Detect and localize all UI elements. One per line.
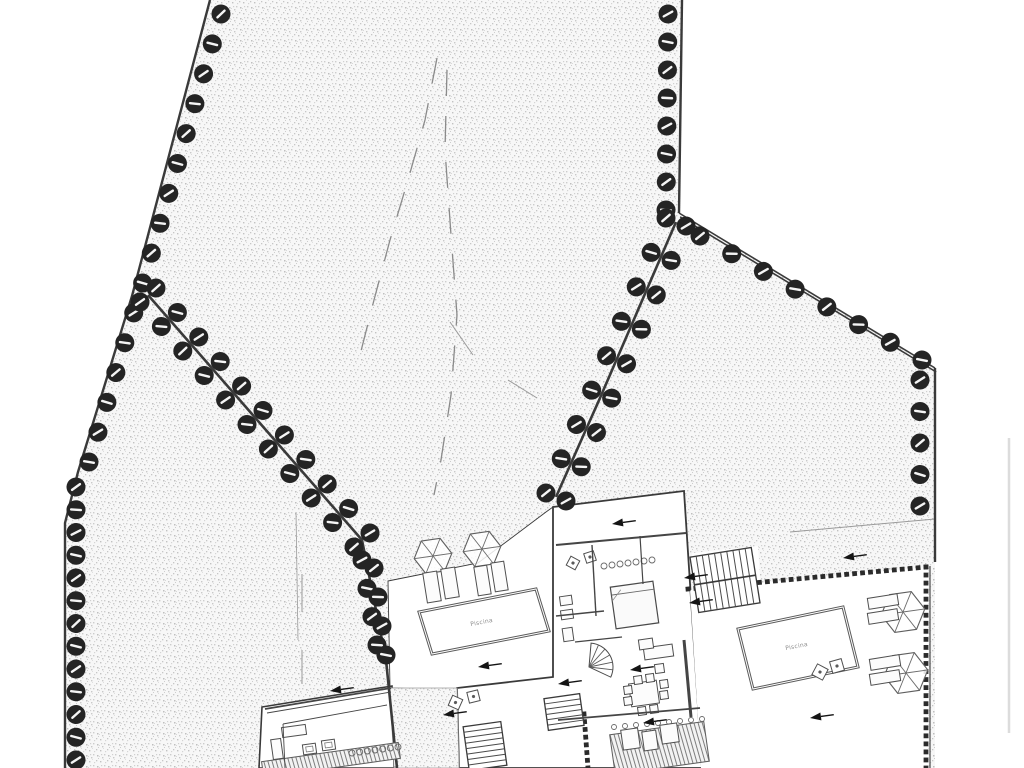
furniture bbox=[660, 723, 679, 744]
wall-dot bbox=[765, 579, 770, 584]
furniture bbox=[559, 595, 572, 606]
tree-icon bbox=[881, 333, 900, 352]
table bbox=[321, 739, 335, 751]
bed bbox=[610, 581, 658, 629]
wall-dot bbox=[828, 573, 833, 578]
wall-dot bbox=[773, 578, 778, 583]
wall-dot bbox=[584, 750, 589, 755]
wall-dot bbox=[884, 568, 889, 573]
furniture bbox=[654, 663, 664, 673]
wall-dot bbox=[924, 741, 929, 746]
wall-dot bbox=[804, 575, 809, 580]
wall-dot bbox=[685, 586, 690, 591]
wall-dot bbox=[924, 717, 929, 722]
wall-dot bbox=[924, 613, 929, 618]
wall-dot bbox=[924, 637, 929, 642]
wall-dot bbox=[924, 589, 929, 594]
wall-dot bbox=[924, 581, 929, 586]
furniture bbox=[623, 696, 632, 705]
tree-icon bbox=[557, 492, 576, 511]
wall-dot bbox=[924, 709, 929, 714]
furniture bbox=[642, 730, 659, 751]
wall-dot bbox=[860, 570, 865, 575]
wall-dot bbox=[924, 693, 929, 698]
site-plan-page: PiscinaPiscina bbox=[0, 0, 1024, 768]
furniture bbox=[637, 706, 646, 715]
staircase bbox=[463, 722, 507, 768]
furniture bbox=[271, 738, 284, 759]
furniture bbox=[659, 690, 668, 699]
wall-dot bbox=[820, 574, 825, 579]
staircase bbox=[690, 547, 760, 612]
wall-dot bbox=[924, 750, 929, 755]
wall-dot bbox=[876, 569, 881, 574]
furniture bbox=[638, 638, 653, 650]
furniture bbox=[659, 679, 668, 688]
wall-dot bbox=[924, 685, 929, 690]
furniture bbox=[562, 627, 574, 641]
furniture bbox=[621, 728, 641, 750]
wall-dot bbox=[915, 565, 920, 570]
staircase bbox=[544, 694, 584, 731]
furniture bbox=[629, 680, 660, 707]
wall-dot bbox=[892, 567, 897, 572]
chair bbox=[467, 690, 480, 703]
chair bbox=[830, 659, 845, 674]
wall-dot bbox=[924, 653, 929, 658]
table-top bbox=[302, 743, 316, 755]
wall-dot bbox=[789, 577, 794, 582]
wall-dot bbox=[583, 735, 588, 740]
wall-dot bbox=[924, 573, 929, 578]
wall-dot bbox=[796, 576, 801, 581]
wall-dot bbox=[908, 566, 913, 571]
wall-dot bbox=[924, 733, 929, 738]
wall-dot bbox=[924, 629, 929, 634]
wall-dot bbox=[924, 645, 929, 650]
wall-dot bbox=[844, 572, 849, 577]
wall-dot bbox=[585, 758, 590, 763]
wall-dot bbox=[812, 575, 817, 580]
bed-frame bbox=[610, 581, 658, 629]
wall-dot bbox=[924, 565, 929, 570]
furniture bbox=[633, 675, 642, 684]
furniture bbox=[623, 685, 632, 694]
wall-dot bbox=[924, 758, 929, 763]
wall-dot bbox=[583, 727, 588, 732]
wall-dot bbox=[924, 701, 929, 706]
furniture bbox=[645, 673, 654, 682]
wall-dot bbox=[924, 621, 929, 626]
stair-outline bbox=[463, 722, 507, 768]
table bbox=[302, 743, 316, 755]
wall-dot bbox=[868, 570, 873, 575]
wall-dot bbox=[584, 742, 589, 747]
tree-icon bbox=[659, 5, 678, 24]
wall-dot bbox=[900, 567, 905, 572]
wall-dot bbox=[852, 571, 857, 576]
wall-dot bbox=[836, 572, 841, 577]
table-top bbox=[321, 739, 335, 751]
wall-dot bbox=[924, 597, 929, 602]
tree-icon bbox=[373, 617, 392, 636]
wall-dot bbox=[924, 725, 929, 730]
wall-dot bbox=[781, 578, 786, 583]
site-plan: PiscinaPiscina bbox=[0, 0, 1024, 768]
